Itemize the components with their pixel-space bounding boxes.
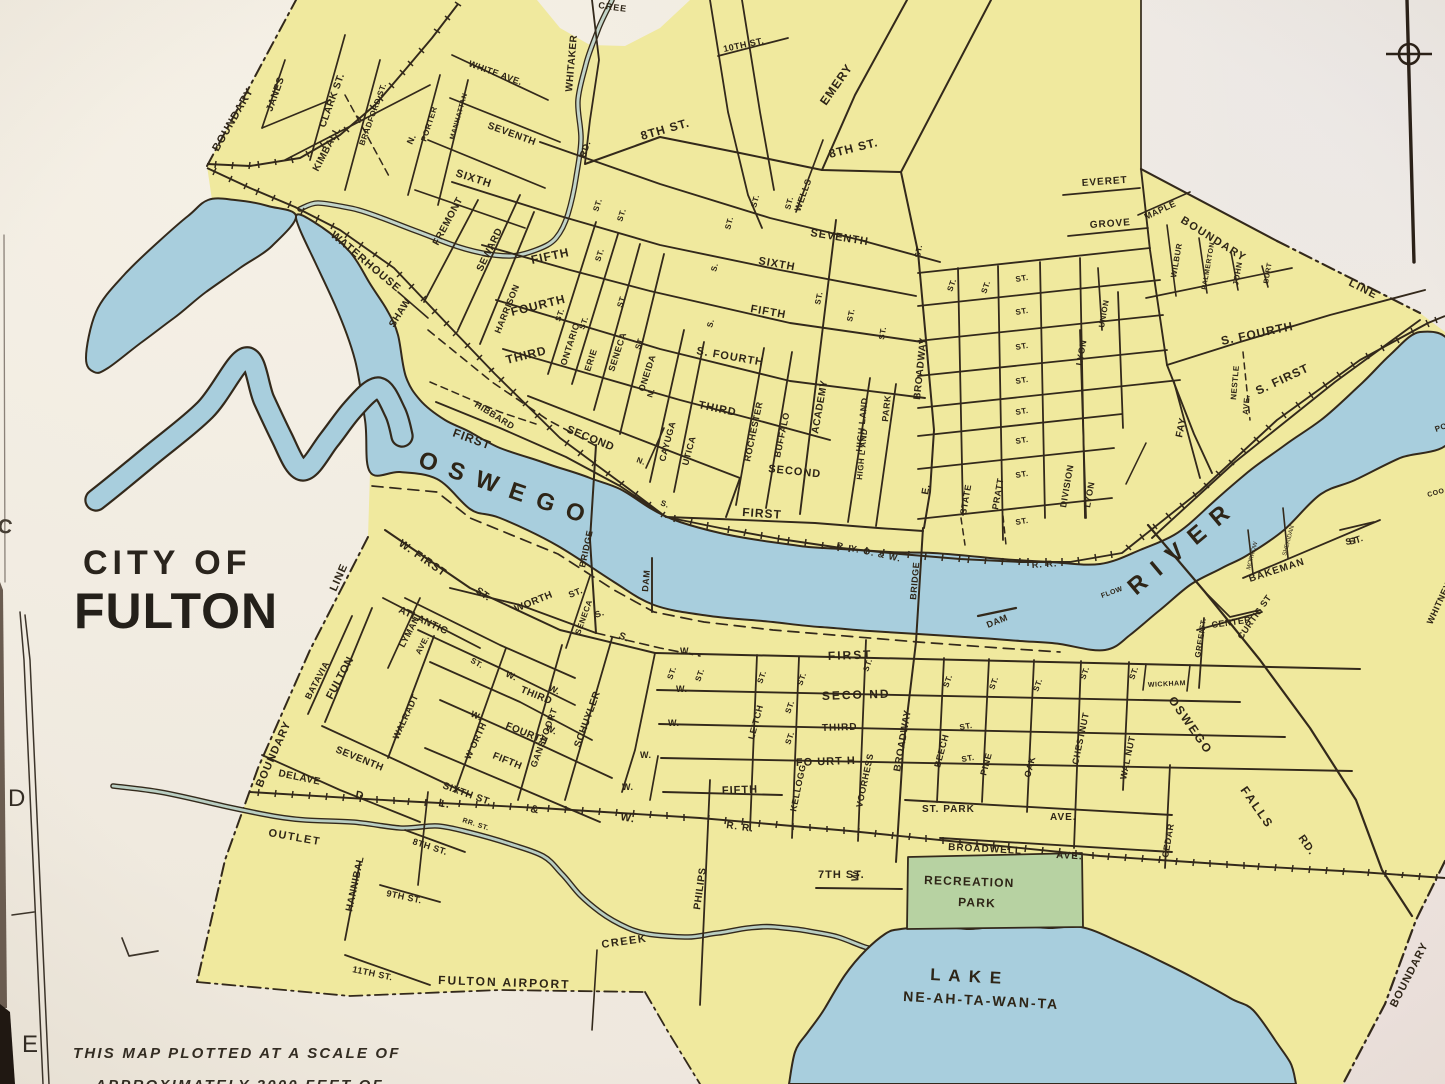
svg-text:L A K E: L A K E	[930, 965, 1004, 988]
svg-text:R. R.: R. R.	[1031, 558, 1057, 570]
svg-text:AVE.: AVE.	[1241, 394, 1252, 415]
svg-text:E.: E.	[920, 483, 933, 495]
svg-text:D.: D.	[354, 789, 369, 803]
svg-text:AVE.: AVE.	[1050, 812, 1077, 823]
svg-text:L.: L.	[437, 797, 451, 811]
svg-text:APPROXIMATELY 2000 FEET O: APPROXIMATELY 2000 FEET OF	[94, 1077, 384, 1084]
svg-text:W.: W.	[680, 646, 692, 656]
svg-text:PARK: PARK	[958, 895, 996, 910]
svg-text:CITY OF: CITY OF	[83, 544, 252, 582]
svg-text:W.: W.	[668, 718, 680, 728]
svg-text:W.: W.	[622, 782, 634, 792]
svg-text:FIFTH: FIFTH	[722, 784, 759, 797]
svg-text:THIRD: THIRD	[822, 722, 858, 734]
svg-text:W.: W.	[676, 684, 688, 694]
svg-text:FULTON: FULTON	[74, 583, 278, 639]
svg-text:E: E	[22, 1031, 39, 1058]
svg-text:DAM: DAM	[640, 569, 652, 592]
svg-text:ST. PARK: ST. PARK	[922, 804, 975, 815]
svg-text:D: D	[8, 785, 26, 812]
svg-text:W.: W.	[619, 811, 636, 825]
svg-text:THIS MAP PLOTTED AT A SCA: THIS MAP PLOTTED AT A SCALE OF	[73, 1045, 401, 1062]
svg-text:7TH ST.: 7TH ST.	[818, 869, 865, 881]
svg-text:FIRST: FIRST	[742, 505, 783, 522]
svg-text:SECO ND: SECO ND	[822, 687, 891, 703]
svg-text:W.: W.	[640, 750, 652, 760]
svg-text:AVE.: AVE.	[1056, 850, 1083, 862]
